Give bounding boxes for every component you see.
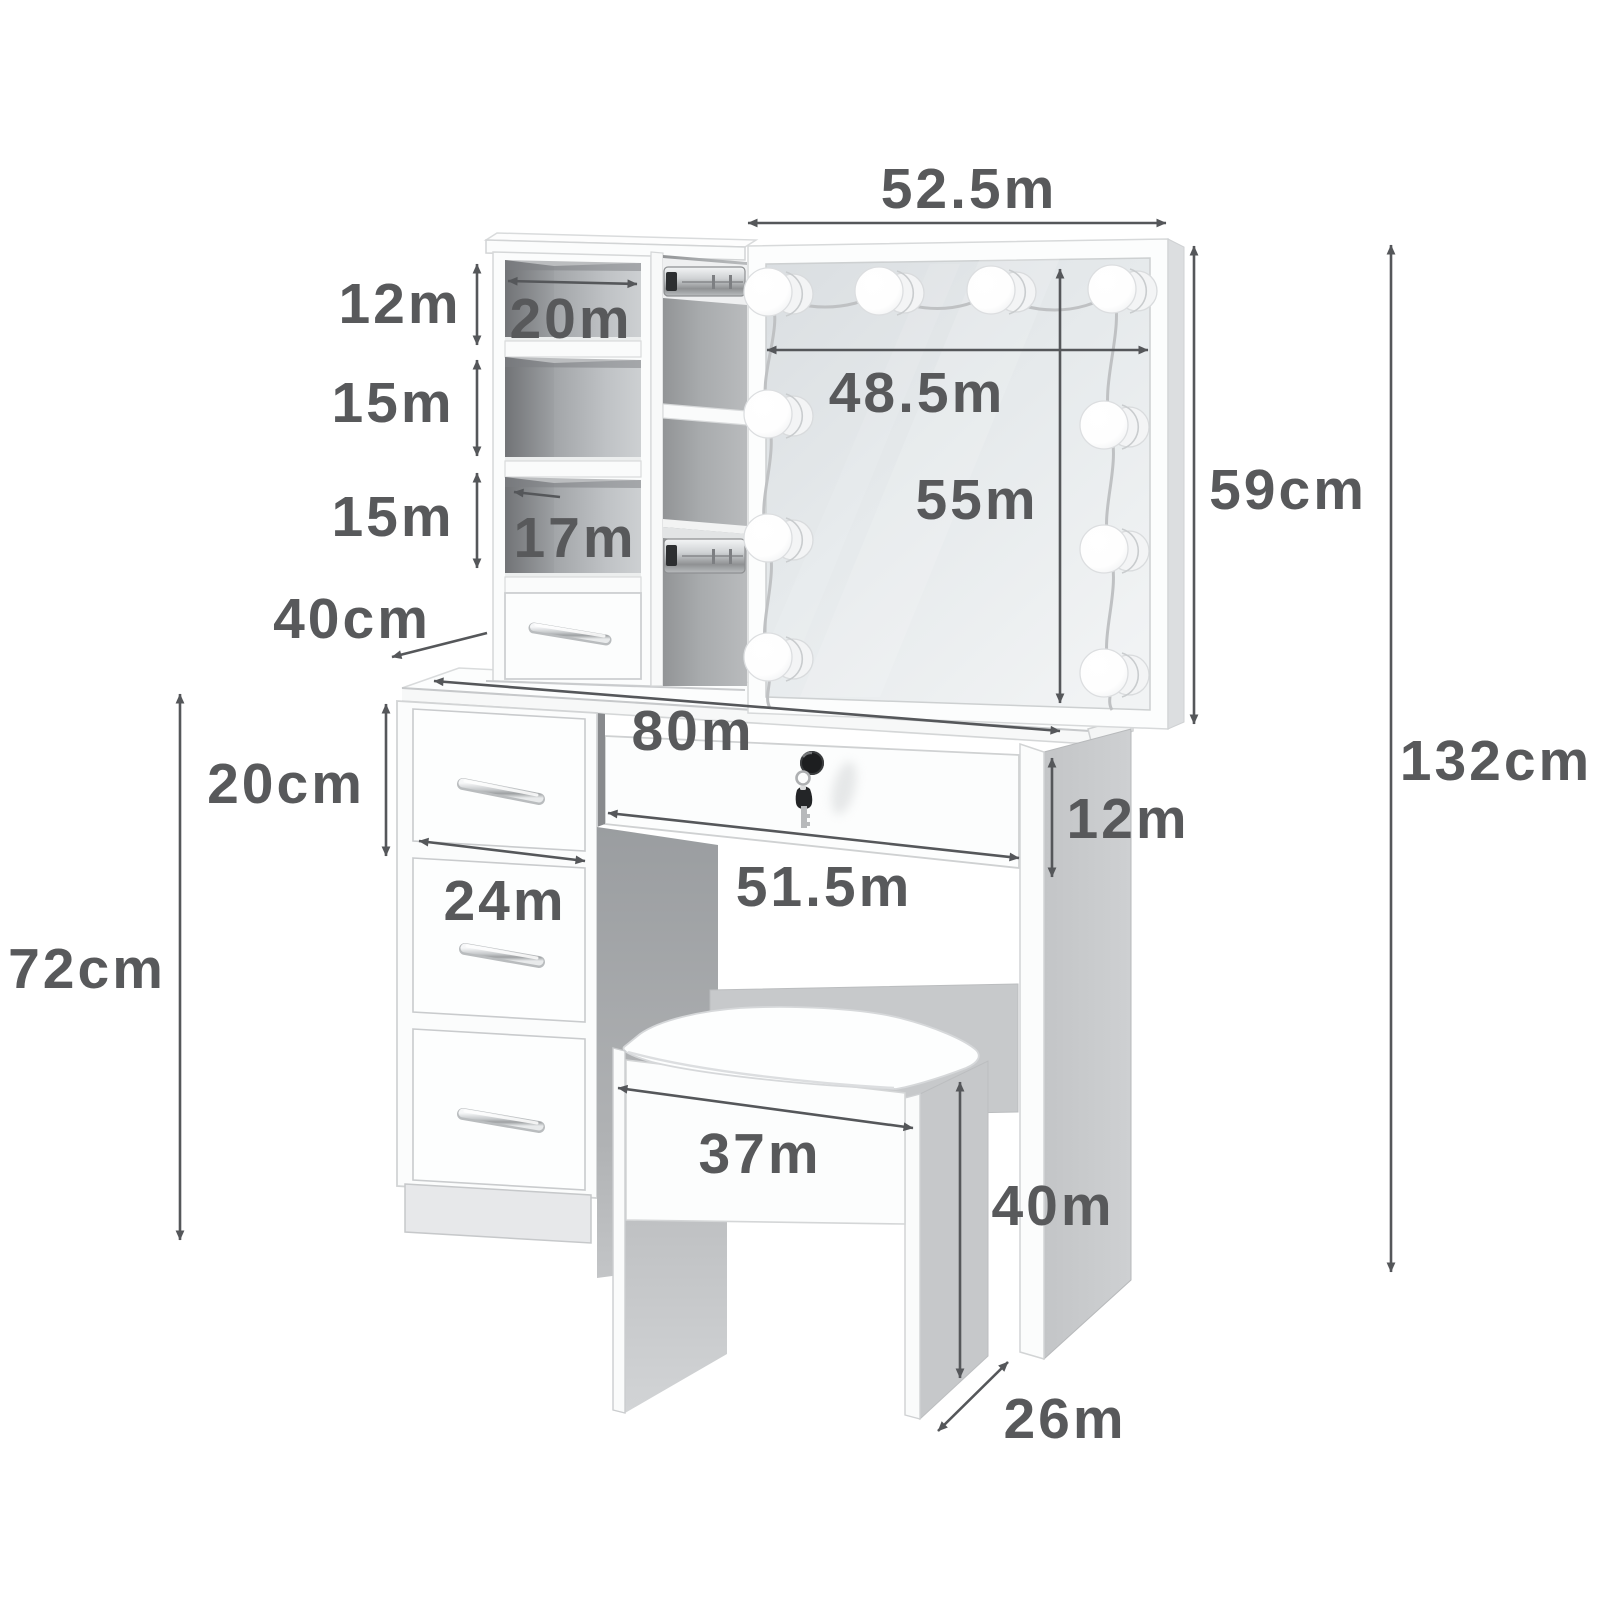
svg-text:12m: 12m bbox=[338, 272, 461, 336]
svg-text:80m: 80m bbox=[631, 699, 754, 763]
svg-text:17m: 17m bbox=[513, 506, 636, 570]
svg-text:12m: 12m bbox=[1066, 787, 1189, 851]
svg-text:48.5m: 48.5m bbox=[829, 361, 1006, 425]
svg-text:40cm: 40cm bbox=[273, 587, 431, 651]
svg-text:40m: 40m bbox=[991, 1174, 1114, 1238]
svg-text:24m: 24m bbox=[443, 869, 566, 933]
svg-text:15m: 15m bbox=[331, 485, 454, 549]
svg-text:15m: 15m bbox=[331, 371, 454, 435]
svg-text:52.5m: 52.5m bbox=[881, 157, 1058, 221]
svg-text:51.5m: 51.5m bbox=[736, 855, 913, 919]
svg-text:20cm: 20cm bbox=[207, 752, 365, 816]
svg-text:59cm: 59cm bbox=[1209, 458, 1367, 522]
svg-text:55m: 55m bbox=[915, 468, 1038, 532]
svg-text:37m: 37m bbox=[698, 1122, 821, 1186]
svg-text:132cm: 132cm bbox=[1400, 729, 1593, 793]
svg-text:72cm: 72cm bbox=[8, 937, 166, 1001]
svg-text:20m: 20m bbox=[509, 287, 632, 351]
svg-text:26m: 26m bbox=[1003, 1387, 1126, 1451]
